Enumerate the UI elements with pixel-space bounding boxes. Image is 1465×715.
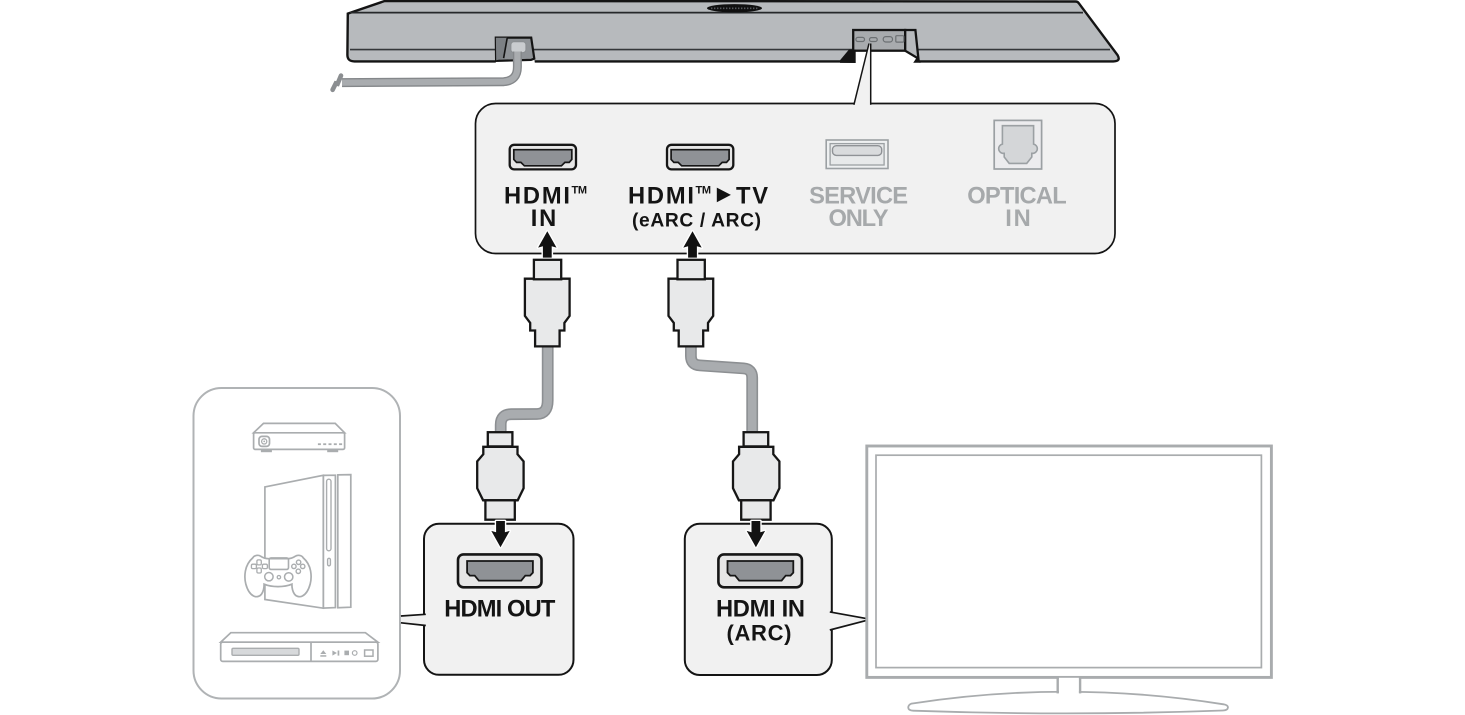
svg-text:(eARC / ARC): (eARC / ARC) — [632, 210, 761, 231]
svg-text:TM: TM — [696, 185, 711, 197]
svg-text:ONLY: ONLY — [829, 206, 889, 232]
svg-text:TM: TM — [572, 185, 587, 197]
svg-text:(ARC): (ARC) — [727, 621, 792, 646]
svg-text:TV: TV — [736, 184, 768, 210]
svg-text:IN: IN — [531, 206, 557, 232]
svg-text:HDMI OUT: HDMI OUT — [444, 596, 556, 622]
svg-text:HDMI IN: HDMI IN — [716, 596, 805, 622]
svg-text:HDMI: HDMI — [628, 184, 694, 210]
svg-text:IN: IN — [1005, 206, 1031, 232]
